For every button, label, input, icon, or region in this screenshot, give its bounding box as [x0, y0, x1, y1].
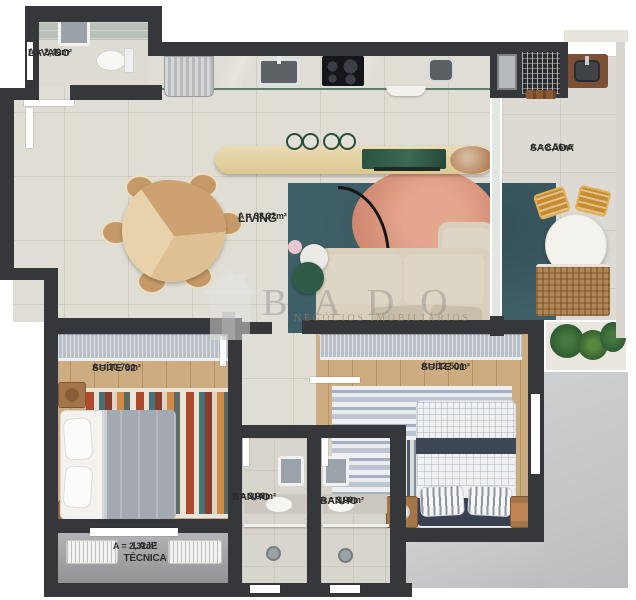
- hall-floor: [242, 322, 320, 428]
- balcony-rail-wall: [616, 40, 628, 338]
- cooktop: [322, 56, 364, 86]
- room-area: A = 2,40m²: [28, 47, 72, 57]
- door-leaf: [310, 377, 360, 383]
- wire-chair-back: [286, 133, 303, 150]
- suite01-duvet-band: [416, 438, 516, 454]
- grill-utensils: [526, 90, 556, 99]
- suite02-duvet: [102, 410, 176, 520]
- kitchen-sink-2: [428, 58, 454, 82]
- faucet: [585, 56, 589, 65]
- wire-chair-back: [339, 133, 356, 150]
- room-area: A = 8,56m²: [530, 142, 574, 152]
- wall: [70, 85, 162, 100]
- wall: [398, 528, 544, 542]
- door-threshold: [250, 585, 280, 593]
- outside-patch: [0, 6, 25, 88]
- door-leaf: [243, 438, 249, 466]
- wall: [148, 42, 498, 56]
- watermark-subtitle: NEGÓCIOS IMOBILIÁRIOS: [294, 313, 471, 324]
- wire-chair-back: [302, 133, 319, 150]
- grill-side-panel: [497, 54, 517, 90]
- wall: [25, 6, 162, 22]
- watermark-chimney-icon: [238, 274, 246, 288]
- ac-condenser: [66, 540, 118, 564]
- lavabo-counter: [39, 22, 148, 40]
- rattan-bench: [536, 264, 610, 316]
- fridge: [164, 56, 214, 97]
- wall: [390, 425, 406, 597]
- balcony-top-wall: [564, 30, 628, 42]
- wall: [228, 318, 242, 597]
- exterior-area: [406, 540, 544, 588]
- sideboard-round-end: [450, 146, 494, 174]
- room-area: A = 3,00m²: [232, 491, 276, 501]
- wire-chair-back: [323, 133, 340, 150]
- wall: [0, 88, 14, 280]
- sliding-glass-door: [490, 98, 502, 322]
- room-area: A = 2,32m²: [113, 541, 157, 551]
- suite01-wardrobe: [320, 334, 522, 360]
- suite02-wardrobe: [58, 334, 230, 361]
- room-area: A = 3,00m²: [320, 495, 364, 505]
- pillow: [467, 485, 513, 517]
- door-threshold: [330, 585, 360, 593]
- watermark-house-roof-icon: [203, 270, 257, 294]
- counter-shelf: [386, 86, 426, 96]
- door-leaf: [322, 438, 328, 466]
- nightstand: [58, 382, 86, 408]
- bathroom-sink: [278, 456, 304, 486]
- pillow: [419, 485, 465, 517]
- floor-plan: LAVABO A = 2,40m² LIVING A = 38,32m² SAC…: [0, 0, 636, 600]
- room-area: A = 38,32m²: [238, 211, 287, 221]
- sideboard-marble-tray: [362, 149, 446, 169]
- door-leaf: [531, 394, 540, 474]
- laje-vent-window: [90, 528, 178, 536]
- pillow: [63, 465, 94, 509]
- wall: [307, 425, 321, 597]
- shower-glass: [244, 524, 306, 527]
- toilet: [96, 50, 126, 71]
- suite01-duvet-grid: [417, 401, 515, 439]
- room-area: A = 10,79m²: [92, 362, 141, 372]
- suite01-duvet-grid: [417, 454, 515, 486]
- pouf-small: [288, 240, 302, 254]
- watermark-house-door-icon: [222, 312, 235, 340]
- shower-head: [338, 548, 353, 563]
- door-leaf: [220, 336, 226, 366]
- door-leaf: [24, 100, 74, 106]
- shower-head: [266, 546, 281, 561]
- toilet-tank: [124, 48, 134, 73]
- charcoal-grill: [522, 52, 560, 94]
- room-area: A = 12,50m²: [421, 361, 470, 371]
- exterior-area: [544, 370, 628, 588]
- pillow: [63, 417, 94, 461]
- shower-glass: [323, 524, 389, 527]
- wall: [242, 425, 404, 438]
- door-leaf: [26, 108, 33, 148]
- sideboard-shadow: [374, 167, 440, 171]
